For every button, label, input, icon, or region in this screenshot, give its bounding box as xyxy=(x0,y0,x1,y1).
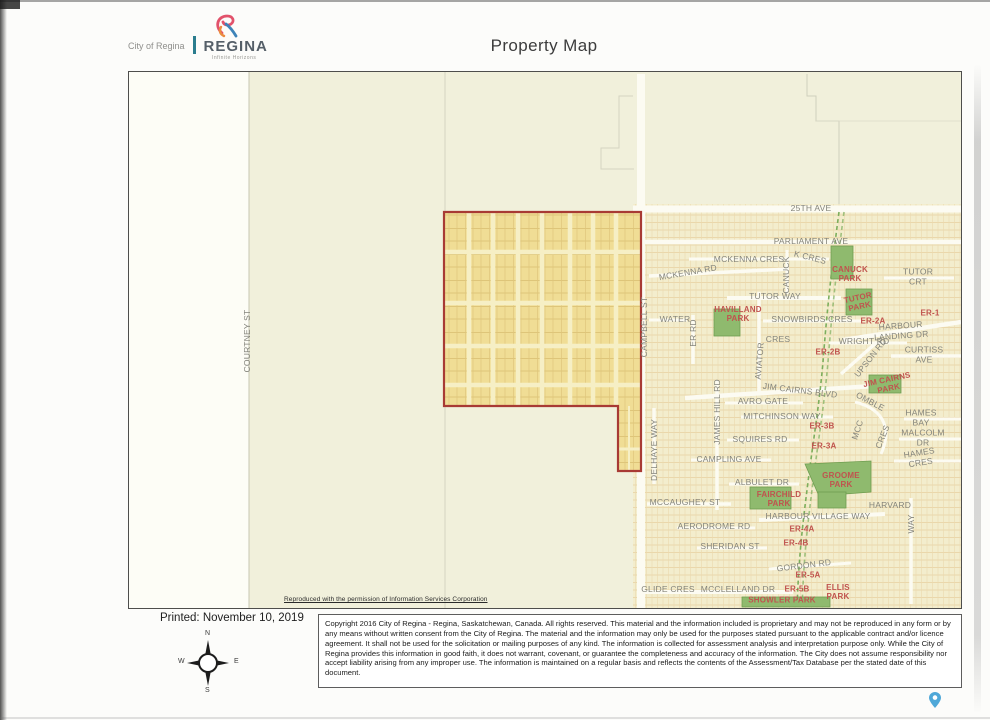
scan-edge-bottom xyxy=(0,717,990,719)
street-label: AERODROME RD xyxy=(678,522,751,532)
street-label: SQUIRES RD xyxy=(733,435,788,445)
street-label: SHERIDAN ST xyxy=(700,542,759,552)
park-label: JIM CAIRNS PARK xyxy=(863,371,914,399)
park-label: SHOWLER PARK xyxy=(748,597,816,606)
street-label: AVRO GATE xyxy=(738,397,788,407)
street-label: JIM CAIRNS BLVD xyxy=(762,382,838,401)
scan-corner-mark xyxy=(0,0,20,9)
street-label: TUTOR WAY xyxy=(749,292,801,302)
street-label: 25TH AVE xyxy=(791,204,832,214)
property-map: COURTNEY STCAMPBELL ST25TH AVEPARLIAMENT… xyxy=(128,71,962,609)
street-label: GLIDE CRES xyxy=(641,585,695,595)
park-label: ER-5B xyxy=(784,586,809,595)
street-label: HAMES CRES xyxy=(898,445,941,470)
compass-west-label: W xyxy=(178,658,185,665)
street-label: HARVARD xyxy=(869,501,911,511)
street-label: MCCAUGHEY ST xyxy=(650,498,721,508)
map-labels: COURTNEY STCAMPBELL ST25TH AVEPARLIAMENT… xyxy=(129,72,961,608)
park-label: TUTOR PARK xyxy=(843,291,875,314)
compass-north-label: N xyxy=(205,630,210,637)
regina-logo-icon xyxy=(212,14,242,38)
street-label: TUTOR CRT xyxy=(897,267,940,286)
park-label: CANUCK PARK xyxy=(832,266,868,284)
park-label: ER-5A xyxy=(795,572,820,581)
street-label: CURTISS AVE xyxy=(905,345,944,364)
street-label: DELHAYE WAY xyxy=(650,419,660,481)
scan-edge-top xyxy=(0,0,990,2)
park-label: ER-4B xyxy=(783,540,808,549)
street-label: AVIATOR xyxy=(754,342,767,380)
street-label: WATER xyxy=(660,315,691,325)
street-label: MCKENNA RD xyxy=(658,263,717,283)
copyright-text: Copyright 2016 City of Regina - Regina, … xyxy=(325,619,955,678)
park-label: ELLIS PARK xyxy=(826,584,850,602)
street-label: MITCHINSON WAY xyxy=(743,412,820,422)
page-title: Property Map xyxy=(128,36,960,56)
copyright-box: Copyright 2016 City of Regina - Regina, … xyxy=(318,614,962,688)
street-label: PARLIAMENT AVE xyxy=(774,237,849,247)
street-label: CRES xyxy=(874,424,892,450)
street-label: MALCOLM DR xyxy=(901,428,944,447)
street-label: GORDON RD xyxy=(776,558,831,574)
street-label: MCKENNA CRES xyxy=(714,255,784,265)
printed-date: Printed: November 10, 2019 xyxy=(160,612,304,624)
street-label: JAMES HILL RD xyxy=(713,379,723,445)
street-label: CANUCK xyxy=(782,256,792,293)
compass-rose: N E S W xyxy=(175,630,241,696)
park-label: ER-2B xyxy=(815,349,840,358)
street-label: HAMES BAY xyxy=(901,408,941,427)
park-label: ER-2A xyxy=(860,318,885,327)
scan-edge-left xyxy=(0,0,7,720)
scan-shadow-right xyxy=(974,64,981,714)
street-label: WRIGHT RD xyxy=(839,337,890,347)
street-label: SNOWBIRDS CRES xyxy=(771,315,852,325)
street-label: MCCLELLAND DR xyxy=(701,585,775,595)
street-label: CAMPBELL ST xyxy=(640,297,650,357)
street-label: K CRES xyxy=(793,249,827,266)
park-label: ER-4A xyxy=(789,526,814,535)
street-label: HARBOUR VILLAGE WAY xyxy=(766,512,871,522)
street-label: HARBOUR LANDING DR xyxy=(870,319,931,342)
street-label: CAMPLING AVE xyxy=(696,455,761,465)
street-label: MCC xyxy=(850,419,865,441)
park-label: ER-3A xyxy=(811,443,836,452)
park-label: ER-3B xyxy=(809,423,834,432)
location-pin-icon xyxy=(929,692,941,708)
park-label: ER-1 xyxy=(920,310,939,319)
street-label: ALBULET DR xyxy=(735,478,789,488)
park-label: GROOME PARK xyxy=(822,472,860,490)
compass-east-label: E xyxy=(234,658,239,665)
street-label: COURTNEY ST xyxy=(243,310,253,373)
park-label: FAIRCHILD PARK xyxy=(757,491,801,509)
scanned-page: City of Regina REGINA Infinite Horizons … xyxy=(0,0,990,720)
park-label: HAVILLAND PARK xyxy=(714,306,761,324)
street-label: CRES xyxy=(766,335,790,345)
street-label: OMBLE xyxy=(854,391,886,414)
street-label: WAY xyxy=(907,514,917,533)
street-label: UPSON RD xyxy=(853,337,889,379)
map-attribution: Reproduced with the permission of Inform… xyxy=(284,596,488,603)
street-label: ER RD xyxy=(689,319,699,346)
compass-south-label: S xyxy=(205,687,210,694)
